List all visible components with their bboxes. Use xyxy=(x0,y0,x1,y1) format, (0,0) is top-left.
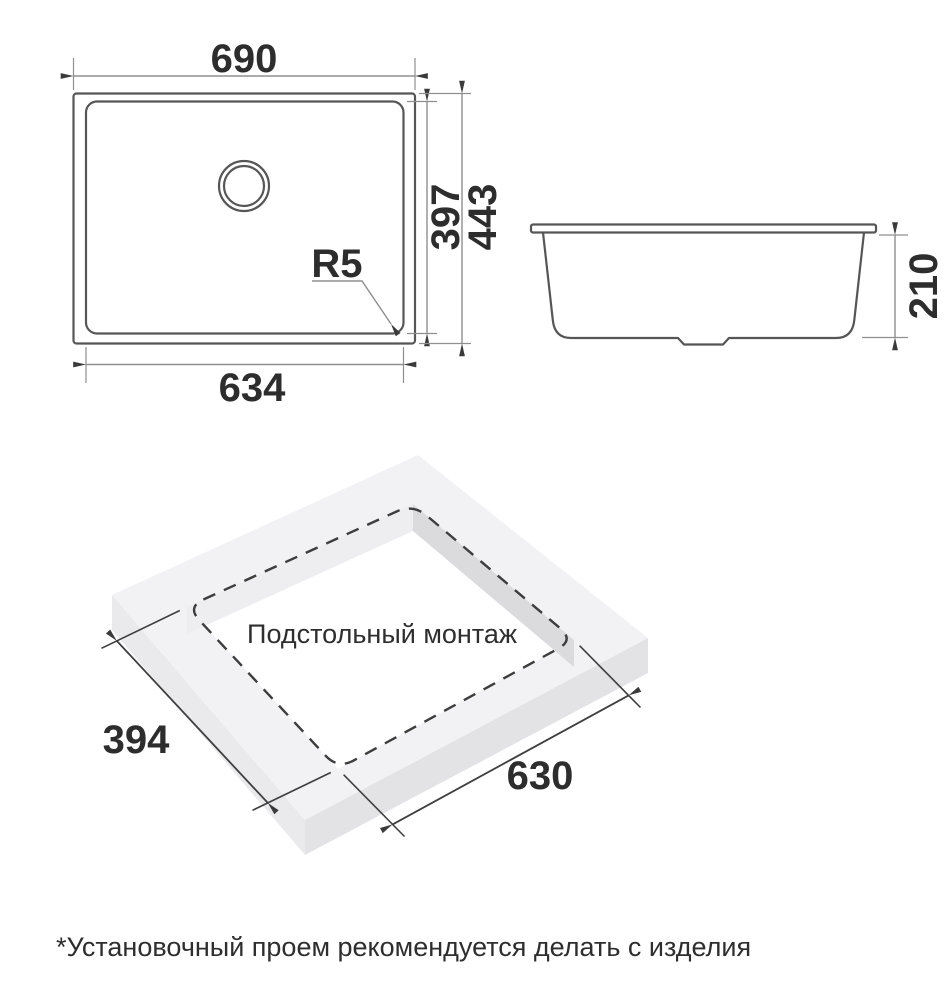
dimension-overall-width: 690 xyxy=(74,37,416,90)
installation-caption: Подстольный монтаж xyxy=(247,619,517,649)
footnote: *Установочный проем рекомендуется делать… xyxy=(56,932,751,962)
dim-label-r5: R5 xyxy=(311,242,362,286)
dim-label-630: 630 xyxy=(507,754,574,798)
dimension-bowl-height: 210 xyxy=(862,235,946,338)
bowl-profile xyxy=(543,233,864,345)
dim-label-690: 690 xyxy=(211,37,278,81)
sink-installation-drawing: 690 634 397 443 R5 xyxy=(0,0,948,1000)
rim-profile xyxy=(531,225,876,233)
side-view: 210 xyxy=(531,225,946,345)
drawing-svg: 690 634 397 443 R5 xyxy=(0,0,948,1000)
dim-label-634: 634 xyxy=(219,366,286,410)
sink-outer-rect xyxy=(74,94,416,344)
dim-label-443: 443 xyxy=(461,184,505,251)
dimension-bowl-depth: 397 xyxy=(407,102,468,334)
dim-label-394: 394 xyxy=(103,718,170,762)
dim-label-210: 210 xyxy=(902,253,946,320)
top-view: 690 634 397 443 R5 xyxy=(74,37,506,410)
dimension-bowl-width: 634 xyxy=(86,347,404,410)
installation-view: Подстольный монтаж 394 630 xyxy=(102,455,649,855)
